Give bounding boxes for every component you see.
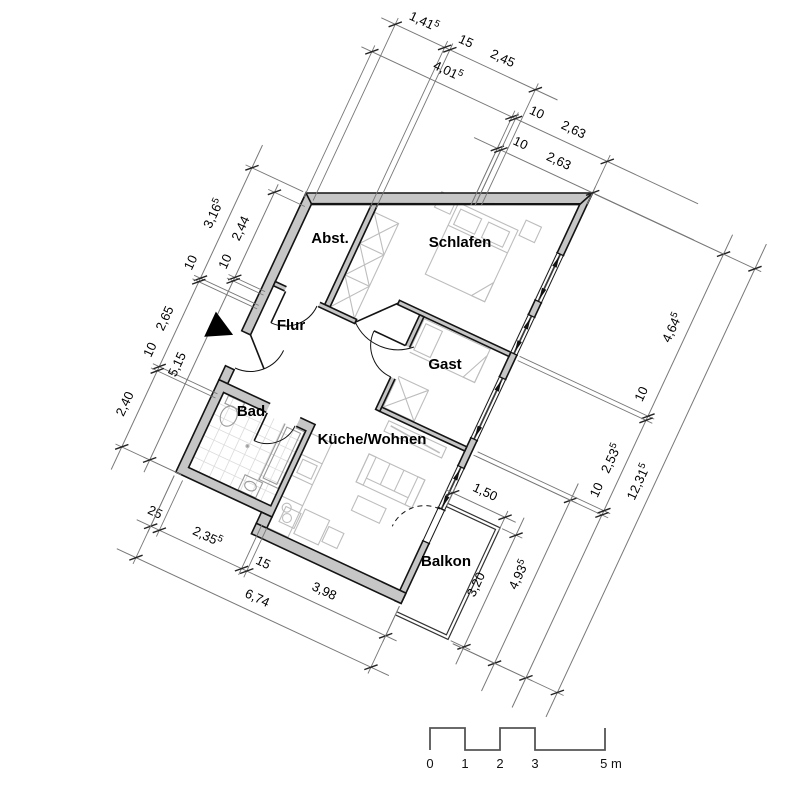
dim-line — [361, 47, 698, 204]
dimension-balcony-width: 1,50 — [446, 480, 516, 532]
scale-bar-label: 0 — [426, 756, 433, 771]
door-gap-bad — [265, 402, 301, 429]
dim-label: 3,165 — [199, 196, 226, 231]
dim-extension — [595, 194, 761, 272]
dim-extension — [133, 476, 174, 564]
dimension-top-2: 4,015102,63 — [304, 45, 698, 205]
sofa-cushion — [380, 464, 390, 485]
bed-double — [425, 203, 518, 302]
wall-abst-schlafen — [325, 205, 378, 308]
dim-line — [482, 484, 579, 692]
counter-line — [282, 496, 303, 506]
room-label-2: Flur — [277, 317, 305, 334]
dim-extension — [499, 511, 508, 531]
room-label-6: Balkon — [421, 553, 471, 570]
dim-label: 2,44 — [228, 214, 252, 243]
door-gap-abst — [284, 285, 321, 309]
floor-plan-page: 1,415152,454,015102,63102,63252,355153,9… — [0, 0, 800, 800]
dim-label: 2,45 — [488, 46, 517, 70]
dim-line — [546, 244, 766, 717]
dim-extension — [518, 361, 653, 424]
room-label-1: Schlafen — [429, 234, 492, 251]
dim-label: 15 — [456, 31, 475, 51]
room-label-5: Küche/Wohnen — [318, 431, 427, 448]
dimension-right-2: 4,645102,53510 — [453, 194, 732, 707]
dim-label: 2,63 — [559, 117, 588, 141]
dim-extension — [246, 165, 304, 192]
entrance-door-leaf — [251, 335, 265, 369]
sink-unit — [297, 459, 317, 479]
wardrobe-line — [360, 244, 384, 255]
scale-bar-label: 2 — [496, 756, 503, 771]
dim-label: 2,40 — [112, 389, 136, 418]
dim-extension — [520, 356, 655, 419]
dimension-top-1: 1,415152,45 — [313, 7, 557, 208]
dim-label: 25 — [145, 502, 164, 522]
dim-extension — [151, 368, 216, 398]
dimension-bottom-1: 252,355153,98 — [137, 476, 400, 642]
scale-bar-line — [430, 728, 605, 750]
dim-label: 1,50 — [471, 480, 500, 504]
dim-label: 10 — [527, 102, 546, 122]
sofa-back — [366, 478, 408, 498]
scale-bar-label: 3 — [531, 756, 538, 771]
wall-left — [242, 193, 312, 335]
dim-label: 5,15 — [165, 350, 189, 379]
dim-label: 10 — [631, 384, 651, 403]
blanket-fold — [471, 283, 493, 302]
hob-ring — [282, 514, 291, 523]
dim-label: 3,98 — [310, 579, 339, 603]
shower-drain — [246, 444, 249, 447]
counter-line — [301, 454, 322, 464]
dim-label: 10 — [586, 480, 606, 499]
wardrobe-line — [345, 275, 369, 286]
dim-label: 2,535 — [597, 441, 624, 476]
dim-label: 10 — [140, 340, 160, 359]
room-label-4: Bad — [237, 403, 265, 420]
dim-line — [111, 145, 262, 470]
sofa-armrest — [356, 454, 376, 485]
dim-label: 10 — [215, 252, 235, 271]
scale-bar-label: 1 — [461, 756, 468, 771]
dim-extension — [304, 45, 375, 197]
scale-bar: 01235 m — [426, 728, 621, 771]
washbasin-bowl — [243, 480, 258, 493]
dim-label: 6,74 — [243, 586, 272, 610]
dimension-balcony-depth: 3,20 — [451, 518, 524, 665]
schlafen-door-leaf — [355, 303, 398, 322]
dim-label: 4,645 — [658, 310, 685, 345]
dim-label: 2,355 — [190, 522, 225, 549]
wall-bad — [176, 380, 315, 517]
entrance-arrow-icon — [204, 312, 233, 337]
dim-label: 2,63 — [544, 149, 573, 173]
room-label-3: Gast — [428, 356, 461, 373]
dim-label: 4,935 — [504, 557, 531, 592]
window-inner-face — [471, 377, 500, 438]
entrance-door-arc — [235, 350, 284, 371]
blanket-fold — [463, 356, 487, 383]
window-outer-face — [477, 380, 506, 441]
dim-extension — [453, 644, 563, 696]
scale-bar-label: 5 m — [600, 756, 622, 771]
dim-extension — [313, 18, 398, 201]
nightstand — [519, 220, 542, 243]
coffee-table — [351, 496, 386, 524]
door-gap-balcony — [422, 507, 446, 544]
sofa-armrest — [405, 477, 425, 508]
gast-door-leaf — [374, 331, 405, 346]
sofa-cushion — [394, 470, 404, 491]
dim-label: 3,20 — [464, 570, 488, 599]
dim-label: 2,65 — [152, 304, 176, 333]
dim-label: 15 — [254, 552, 273, 572]
dim-line — [512, 235, 733, 708]
floor-plan-canvas: 1,415152,454,015102,63102,63252,355153,9… — [0, 0, 800, 800]
dim-label: 1,415 — [407, 7, 442, 34]
wall-top — [301, 193, 593, 205]
dim-line — [381, 18, 557, 100]
room-label-0: Abst. — [311, 230, 349, 247]
pillow — [454, 209, 482, 234]
counter-line — [292, 475, 313, 485]
dim-label: 10 — [181, 253, 201, 272]
